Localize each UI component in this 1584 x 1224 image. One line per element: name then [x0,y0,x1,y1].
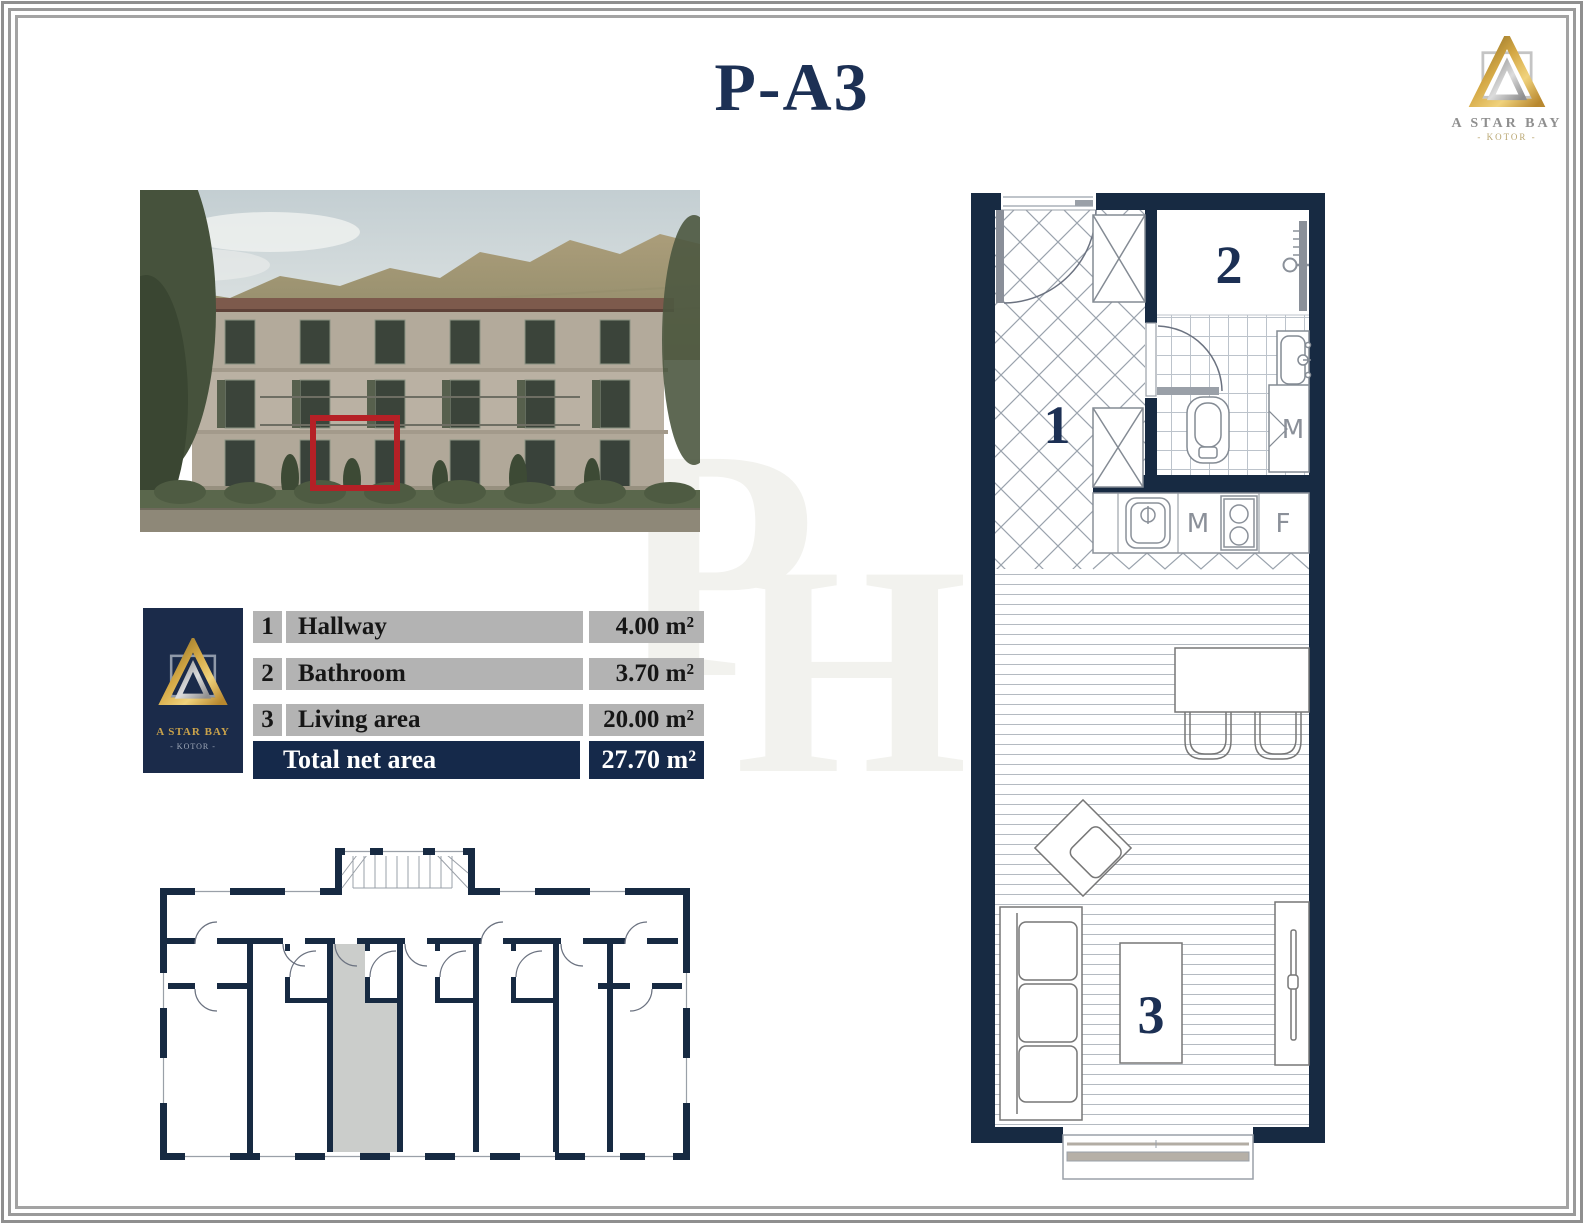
row-room-name: Hallway [286,611,583,643]
row-room-name: Living area [286,704,583,736]
table-logo-subtitle: - KOTOR - [143,742,243,751]
washer-label: M [1282,415,1304,445]
total-label: Total net area [253,741,580,779]
sofa [1000,907,1082,1120]
table-logo-name: A STAR BAY [143,726,243,738]
brand-logo-top: A STAR BAY - KOTOR - [1432,36,1582,142]
brand-triangle-icon [1459,36,1555,114]
row-area-value: 3.70 m² [589,658,704,690]
page-title: P-A3 [0,48,1584,127]
room-label-living: 3 [1138,985,1165,1045]
kitchen-counter: M F [1093,493,1309,553]
total-area-value: 27.70 m² [589,741,704,779]
brand-name: A STAR BAY [1432,116,1582,132]
building-key-plan [155,843,690,1168]
room-label-bathroom: 2 [1216,235,1243,295]
building [182,298,674,494]
brochure-page: P H P-A3 A STAR BAY - KOTOR - [0,0,1584,1224]
tv-unit [1275,902,1309,1065]
table-logo-block: A STAR BAY - KOTOR - [143,608,243,773]
bathroom-washer: M [1269,385,1309,472]
fridge-label: F [1276,509,1291,539]
staircase [342,855,468,888]
room-label-hallway: 1 [1044,395,1071,455]
kitchen-washer-label: M [1187,509,1209,539]
bathroom-sink [1277,331,1311,389]
row-area-value: 20.00 m² [589,704,704,736]
row-number: 1 [253,611,282,643]
brand-subtitle: - KOTOR - [1432,132,1582,142]
row-area-value: 4.00 m² [589,611,704,643]
row-number: 2 [253,658,282,690]
apartment-floor-plan: M M F [963,185,1325,1185]
toilet [1187,397,1229,463]
terrace-window [1063,1135,1253,1179]
key-plan-doors [195,922,652,1011]
watermark-letter-h: H [735,520,968,820]
row-number: 3 [253,704,282,736]
table-triangle-icon [151,638,235,714]
balcony-rail [260,396,580,398]
building-photo [140,190,700,532]
row-room-name: Bathroom [286,658,583,690]
